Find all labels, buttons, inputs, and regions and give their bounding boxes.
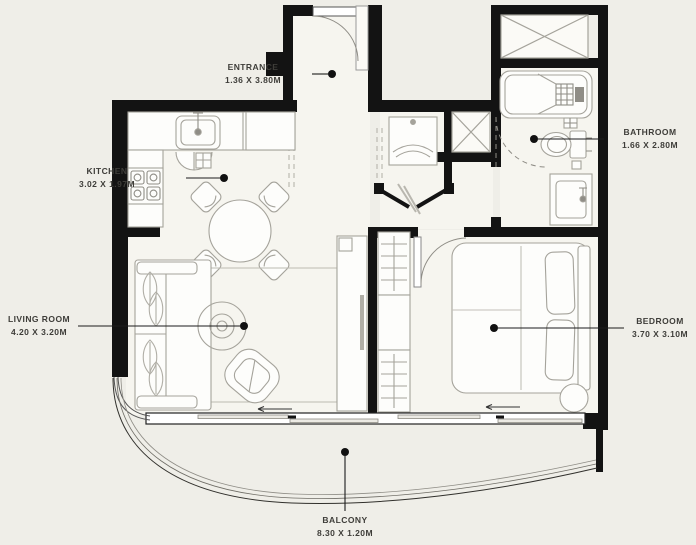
tv-console	[337, 236, 367, 411]
kitchen-fridge	[246, 112, 295, 150]
bedroom-label-dims: 3.70 X 3.10M	[624, 328, 696, 341]
bathroom-label: BATHROOM 1.66 X 2.80M	[607, 126, 693, 152]
living-room-label-dims: 4.20 X 3.20M	[2, 326, 76, 339]
wardrobe-back-wall	[368, 232, 377, 413]
kitchen-top-wall	[112, 100, 297, 112]
balcony-label-name: BALCONY	[295, 514, 395, 527]
bedroom-wardrobe	[378, 232, 410, 412]
laundry-closet	[389, 117, 437, 165]
floor-drain	[564, 118, 577, 128]
living-room-label-name: LIVING ROOM	[2, 313, 76, 326]
bathroom-bottom-wall	[464, 227, 608, 237]
hall-top-wall	[368, 100, 500, 112]
bedside-stool	[560, 384, 588, 412]
kitchen-step-wall	[112, 227, 160, 237]
bathroom-label-dims: 1.66 X 2.80M	[607, 139, 693, 152]
small-shaft-bottom-wall	[433, 152, 498, 162]
balcony-leader	[341, 448, 349, 511]
entrance-right-wall	[368, 5, 382, 112]
entrance-label-dims: 1.36 X 3.80M	[196, 74, 310, 87]
bathroom-door-post	[491, 217, 501, 231]
duct-x-large	[501, 15, 588, 58]
bedroom-corner-wall	[583, 413, 608, 429]
entrance-label-name: ENTRANCE	[196, 61, 310, 74]
floor-plan-drawing	[0, 0, 696, 545]
bedroom-label: BEDROOM 3.70 X 3.10M	[624, 315, 696, 341]
living-left-wall	[112, 237, 128, 377]
washing-machine	[389, 117, 437, 165]
balcony-right-wall	[596, 429, 603, 472]
floor-plan-page: ENTRANCE 1.36 X 3.80M KITCHEN 3.02 X 1.9…	[0, 0, 696, 545]
entrance-label: ENTRANCE 1.36 X 3.80M	[196, 61, 310, 87]
balcony-label-dims: 8.30 X 1.20M	[295, 527, 395, 540]
shaft-bottom-wall	[491, 58, 608, 68]
bathtub	[500, 71, 592, 118]
kitchen-label-name: KITCHEN	[32, 165, 182, 178]
living-room-label: LIVING ROOM 4.20 X 3.20M	[2, 313, 76, 339]
kitchen-label: KITCHEN 3.02 X 1.97M	[32, 165, 182, 191]
balcony-label: BALCONY 8.30 X 1.20M	[295, 514, 395, 540]
dining-table	[209, 200, 271, 262]
duct-x-small	[452, 112, 490, 152]
bed	[452, 243, 590, 393]
bedroom-label-name: BEDROOM	[624, 315, 696, 328]
right-outer-wall	[598, 5, 608, 430]
kitchen-sink	[176, 113, 220, 149]
bathroom-label-name: BATHROOM	[607, 126, 693, 139]
entry-door-left-jamb	[283, 5, 313, 16]
kitchen-label-dims: 3.02 X 1.97M	[32, 178, 182, 191]
top-right-wall	[491, 5, 608, 15]
closet-right-wall	[444, 112, 452, 185]
